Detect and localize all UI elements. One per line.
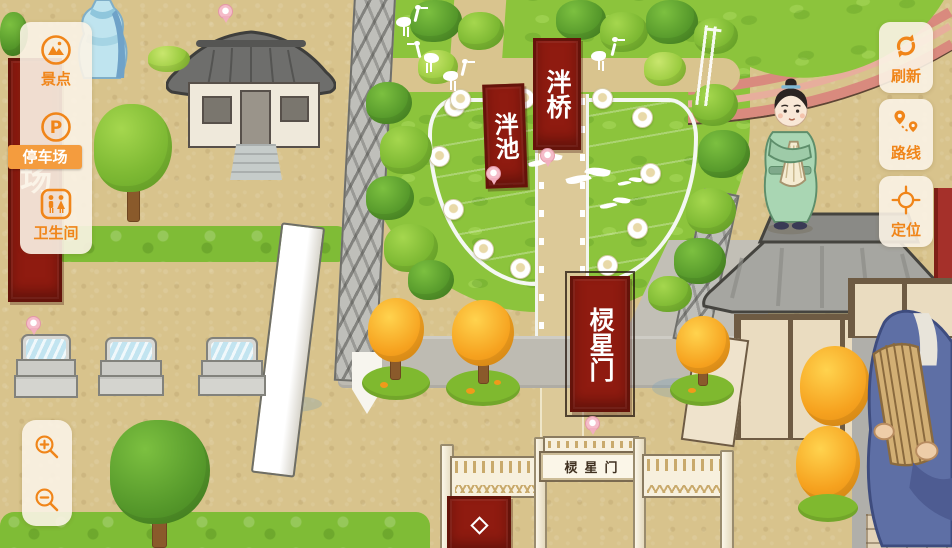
tree [110, 420, 210, 524]
locate-button[interactable]: 定位 [879, 176, 933, 247]
pond-post [429, 146, 450, 167]
route-label: 路线 [891, 142, 921, 163]
tree [408, 260, 454, 300]
egret-bird [396, 4, 422, 36]
car-windshield [211, 342, 254, 361]
small-house [166, 20, 336, 180]
pond-post [510, 258, 531, 279]
map-canvas[interactable]: 棂星门 [0, 0, 952, 548]
parked-car [198, 337, 262, 394]
fallen-leaves [466, 388, 475, 394]
pond-post [597, 255, 618, 276]
car-windshield [110, 342, 151, 361]
car-base [14, 375, 78, 398]
reader-figure [855, 282, 952, 548]
pond-post [450, 89, 471, 110]
house-window [202, 96, 232, 124]
fallen-leaves [380, 382, 388, 388]
tree [94, 104, 172, 192]
route-icon [890, 107, 922, 139]
left-menu-panel: 景点 P 停车场 卫生间 [20, 22, 92, 254]
map-pin[interactable] [218, 4, 232, 24]
menu-item-parking[interactable]: P 停车场 [20, 99, 92, 176]
zoom-out-button[interactable] [30, 480, 64, 520]
zoom-controls-panel [22, 420, 72, 526]
svg-text:P: P [50, 118, 62, 138]
house-steps [230, 144, 282, 180]
map-pin[interactable] [26, 316, 40, 336]
restroom-icon [38, 186, 74, 222]
zoom-in-icon [32, 432, 62, 462]
autumn-tree [368, 298, 424, 362]
parking-icon: P [38, 109, 74, 145]
autumn-tree [676, 316, 730, 374]
menu-item-restroom[interactable]: 卫生间 [20, 176, 92, 253]
refresh-icon [890, 30, 922, 62]
dove-bird [618, 176, 642, 190]
scholar-figure [746, 72, 832, 240]
gate-pillar [720, 450, 734, 548]
car-windshield [26, 339, 66, 360]
egret-bird [591, 36, 619, 70]
autumn-tree [452, 300, 514, 366]
dove-bird [566, 165, 610, 191]
house-window [280, 96, 309, 122]
menu-label-scenic-spots: 景点 [41, 69, 71, 89]
gate-beam [450, 456, 540, 498]
route-button[interactable]: 路线 [879, 99, 933, 170]
pond-post [640, 163, 661, 184]
refresh-button[interactable]: 刷新 [879, 22, 933, 93]
pond-post [592, 88, 613, 109]
egret-bird [413, 40, 439, 72]
tree-base [798, 494, 858, 522]
gate-plaque: 棂星门 [539, 451, 643, 482]
car-base [98, 375, 164, 396]
pond-post [627, 218, 648, 239]
map-pin[interactable] [540, 148, 554, 168]
house-door [240, 90, 271, 148]
menu-label-restroom: 卫生间 [33, 223, 78, 243]
egret-bird [443, 58, 469, 90]
map-pin[interactable] [486, 166, 500, 186]
pond-post [443, 199, 464, 220]
zoom-out-icon [32, 485, 62, 515]
menu-label-parking: 停车场 [8, 145, 82, 169]
map-pin[interactable] [585, 416, 599, 436]
parked-car [14, 334, 74, 396]
banner-bottom-partial[interactable] [447, 496, 511, 548]
car-base [198, 375, 266, 396]
menu-item-scenic-spots[interactable]: 景点 [20, 22, 92, 99]
banner-glyph-mark [470, 516, 488, 534]
banner-pan-bridge[interactable]: 泮桥 [533, 38, 581, 150]
scenic-spot-icon [38, 32, 74, 68]
dove-bird [600, 196, 630, 214]
locate-icon [890, 184, 922, 216]
autumn-tree [796, 426, 860, 502]
pond-post [632, 107, 653, 128]
gate-beam [642, 454, 726, 498]
refresh-label: 刷新 [891, 65, 921, 86]
scenic-map-screen: 棂星门 [0, 0, 952, 548]
fallen-leaves [494, 380, 501, 385]
parked-car [98, 337, 160, 394]
pond-post [473, 239, 494, 260]
fallen-leaves [688, 388, 696, 393]
banner-lingxing-gate[interactable]: 棂星门 [570, 276, 630, 412]
locate-label: 定位 [891, 219, 921, 240]
zoom-in-button[interactable] [30, 427, 64, 467]
